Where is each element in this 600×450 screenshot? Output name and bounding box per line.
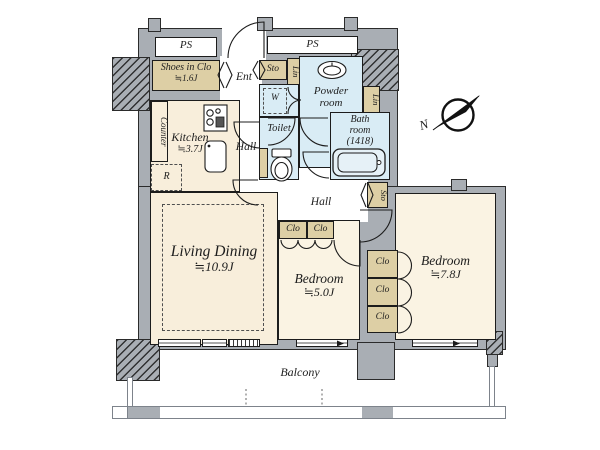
window-bedroom-right bbox=[412, 339, 478, 347]
closet-column-2 bbox=[367, 278, 398, 306]
balcony-label: Balcony bbox=[255, 366, 345, 379]
wall-bump-top-right bbox=[344, 17, 358, 31]
kitchen-counter bbox=[151, 101, 168, 162]
washer-space bbox=[263, 88, 287, 114]
wall-bump-top-left bbox=[148, 18, 161, 32]
hatch-pier-bottom-left bbox=[116, 339, 160, 381]
floorplan-page: { "floorplan": { "service": { "pipe_spac… bbox=[0, 0, 600, 450]
refrigerator-space bbox=[151, 164, 182, 191]
hatch-corner-top-left bbox=[112, 57, 150, 111]
shoes-in-closet bbox=[152, 60, 220, 91]
window-living-low bbox=[228, 339, 260, 347]
storage-hall bbox=[367, 182, 388, 208]
pipe-space-left bbox=[155, 37, 217, 57]
balcony-rail-pier-left bbox=[128, 407, 160, 418]
closet-column-1 bbox=[367, 250, 398, 278]
living-dining-rug-outline bbox=[162, 204, 264, 331]
toilet-counter bbox=[259, 148, 268, 178]
balcony-rail-end-left bbox=[112, 406, 128, 419]
bedroom-right bbox=[395, 193, 496, 340]
closet-column-3 bbox=[367, 306, 398, 333]
compass-icon bbox=[433, 95, 480, 131]
wall-bump-bedroom-right bbox=[451, 179, 467, 191]
linen-closet-right bbox=[363, 86, 380, 113]
storage-entry bbox=[259, 60, 287, 80]
pipe-space-right bbox=[267, 36, 358, 54]
wall-pier-bottom-mid bbox=[357, 342, 395, 380]
compass-north-label: N bbox=[414, 116, 434, 135]
closet-bedroom-center-2 bbox=[307, 221, 334, 239]
window-bedroom-center bbox=[296, 339, 348, 347]
wall-bump-top-mid bbox=[257, 17, 273, 31]
balcony-rail-pier-mid bbox=[362, 407, 393, 418]
balcony-rail-post-right bbox=[489, 366, 495, 407]
bath-room bbox=[330, 112, 390, 180]
balcony-rail-post-left bbox=[127, 377, 133, 407]
window-living-1 bbox=[158, 339, 201, 347]
balcony-rail bbox=[127, 406, 506, 419]
closet-bedroom-center-1 bbox=[279, 221, 307, 239]
window-living-2 bbox=[202, 339, 227, 347]
